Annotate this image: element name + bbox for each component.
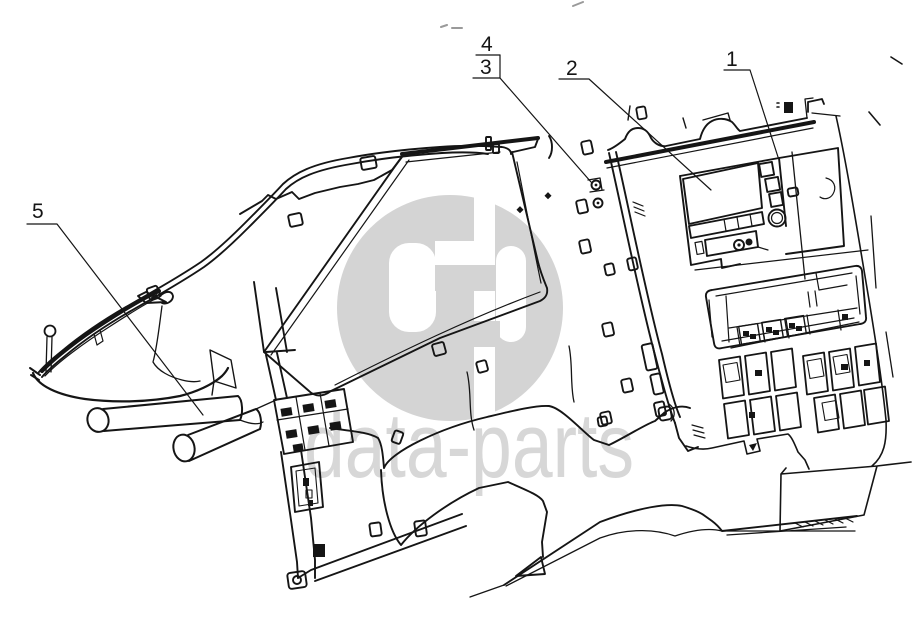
svg-text:3: 3	[480, 56, 492, 79]
svg-text:1: 1	[726, 48, 738, 71]
svg-text:2: 2	[566, 57, 578, 80]
svg-text:data-parts: data-parts	[304, 395, 634, 497]
svg-text:4: 4	[481, 33, 493, 56]
svg-text:5: 5	[32, 200, 44, 223]
